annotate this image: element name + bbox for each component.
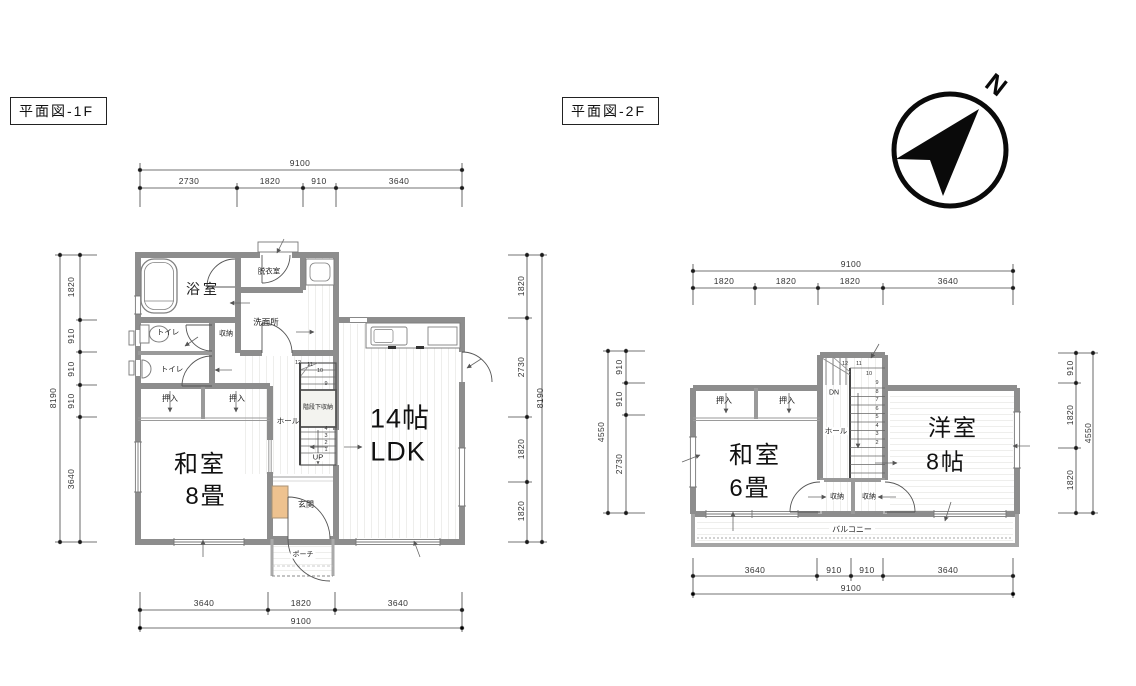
stairs-dn-label: DN <box>829 390 839 397</box>
stair-number: 4 <box>875 423 878 429</box>
dim-f2-bottom-seg: 910 <box>859 566 874 575</box>
room-label-porch: ポーチ <box>291 552 316 559</box>
stair-number: 6 <box>875 406 878 412</box>
room-label-washitsu-1f: 和室 <box>174 453 226 477</box>
stair-number: 7 <box>875 397 878 403</box>
stair-number: 3 <box>875 431 878 437</box>
dim-f1-left-seg: 910 <box>67 361 76 376</box>
stair-number: 4 <box>324 426 327 432</box>
dim-f1-bottom-seg: 3640 <box>388 599 409 608</box>
dim-f2-right-total: 4550 <box>1084 423 1093 444</box>
stair-number: 9 <box>875 380 878 386</box>
plan-title-1f: 平面図-1F <box>10 97 107 125</box>
stair-number: 9 <box>324 381 327 387</box>
room-label-balcony: バルコニー <box>829 526 875 534</box>
room-label-closet-1: 押入 <box>162 395 178 403</box>
room-label-storage: 収納 <box>219 331 233 338</box>
dim-f2-top-seg: 1820 <box>776 277 797 286</box>
dim-f1-bottom-seg: 1820 <box>291 599 312 608</box>
room-label-toilet-1: トイレ <box>157 328 180 336</box>
stair-number: 2 <box>324 440 327 446</box>
room-label-closet-4: 押入 <box>779 397 795 405</box>
dim-f1-left-total: 8190 <box>49 388 58 409</box>
dim-f1-left-seg: 3640 <box>67 469 76 490</box>
dim-f1-top-seg: 3640 <box>389 177 410 186</box>
room-label-bath: 浴室 <box>186 282 220 296</box>
dim-f2-bottom-seg: 3640 <box>938 566 959 575</box>
stair-number: 8 <box>875 389 878 395</box>
dim-f1-right-seg: 1820 <box>517 501 526 522</box>
room-label-washitsu-1f-size: 8畳 <box>185 485 226 509</box>
room-label-yoshitsu: 洋室 <box>928 417 978 440</box>
stair-number: 5 <box>875 414 878 420</box>
dim-f1-top-seg: 910 <box>311 177 326 186</box>
north-compass <box>894 94 1006 206</box>
dim-f1-top-seg: 2730 <box>179 177 200 186</box>
room-label-washroom: 洗面所 <box>253 318 279 327</box>
room-label-hall-1f: ホール <box>277 417 300 425</box>
urinal <box>142 360 151 378</box>
dim-f2-top-seg: 1820 <box>714 277 735 286</box>
stair-number: 2 <box>875 440 878 446</box>
room-label-yoshitsu-size: 8帖 <box>926 451 966 474</box>
stair-number: 12 <box>842 361 848 367</box>
room-label-closet-3: 押入 <box>716 397 732 405</box>
room-label-storage-1: 収納 <box>830 494 844 501</box>
stair-number: 10 <box>866 371 872 377</box>
shoe-cabinet <box>272 486 288 518</box>
room-label-toilet-2: トイレ <box>161 365 184 373</box>
room-label-hall-2f: ホール <box>825 427 848 435</box>
room-label-dressing: 脱衣室 <box>258 267 281 275</box>
stairs-up-label: UP <box>313 453 323 461</box>
room-label-ldk: LDK <box>370 439 426 466</box>
room-label-entrance: 玄関 <box>298 501 314 509</box>
toilet-tank <box>140 325 149 343</box>
stair-number: 11 <box>856 361 862 367</box>
dim-f1-top-seg: 1820 <box>260 177 281 186</box>
room-label-washitsu-2f: 和室 <box>729 444 781 468</box>
dim-f2-left-seg: 2730 <box>615 454 624 475</box>
dim-f2-left-seg: 910 <box>615 391 624 406</box>
dim-f1-top-total: 9100 <box>290 159 311 168</box>
dim-f1-right-total: 8190 <box>536 388 545 409</box>
dim-f1-bottom-total: 9100 <box>291 617 312 626</box>
dim-f1-left-seg: 910 <box>67 328 76 343</box>
north-arrow-icon <box>896 109 979 196</box>
dim-f1-right-seg: 1820 <box>517 276 526 297</box>
stair-number: 10 <box>317 368 323 374</box>
dim-f2-bottom-seg: 910 <box>826 566 841 575</box>
floor-plan-canvas: 平面図-1F 平面図-2F N 浴室 脱衣室 洗面所 トイレ トイレ 収納 押入… <box>0 0 1136 686</box>
dim-f1-right-seg: 1820 <box>517 439 526 460</box>
dim-f2-left-seg: 910 <box>615 359 624 374</box>
dim-f2-top-total: 9100 <box>841 260 862 269</box>
room-label-ldk-size: 14帖 <box>370 406 430 433</box>
dim-f2-top-seg: 1820 <box>840 277 861 286</box>
room-label-under-stair-storage: 階段下収納 <box>303 405 333 411</box>
stair-number: 12 <box>295 360 301 366</box>
dim-f2-right-seg: 1820 <box>1066 405 1075 426</box>
room-label-washitsu-2f-size: 6畳 <box>729 477 770 501</box>
dim-f1-bottom-seg: 3640 <box>194 599 215 608</box>
dim-f2-right-seg: 1820 <box>1066 470 1075 491</box>
stair-number: 11 <box>307 362 313 368</box>
plan-title-2f: 平面図-2F <box>562 97 659 125</box>
dim-f1-left-seg: 910 <box>67 393 76 408</box>
kitchen-stove <box>428 327 457 345</box>
dim-f2-right-seg: 910 <box>1066 360 1075 375</box>
dim-f2-top-seg: 3640 <box>938 277 959 286</box>
dim-f1-left-seg: 1820 <box>67 277 76 298</box>
stair-number: 1 <box>324 447 327 453</box>
dim-f2-bottom-total: 9100 <box>841 584 862 593</box>
dim-f2-bottom-seg: 3640 <box>745 566 766 575</box>
dim-f1-right-seg: 2730 <box>517 357 526 378</box>
room-label-closet-2: 押入 <box>229 395 245 403</box>
room-label-storage-2: 収納 <box>862 494 876 501</box>
stair-number: 3 <box>324 433 327 439</box>
dim-f2-left-total: 4550 <box>597 422 606 443</box>
